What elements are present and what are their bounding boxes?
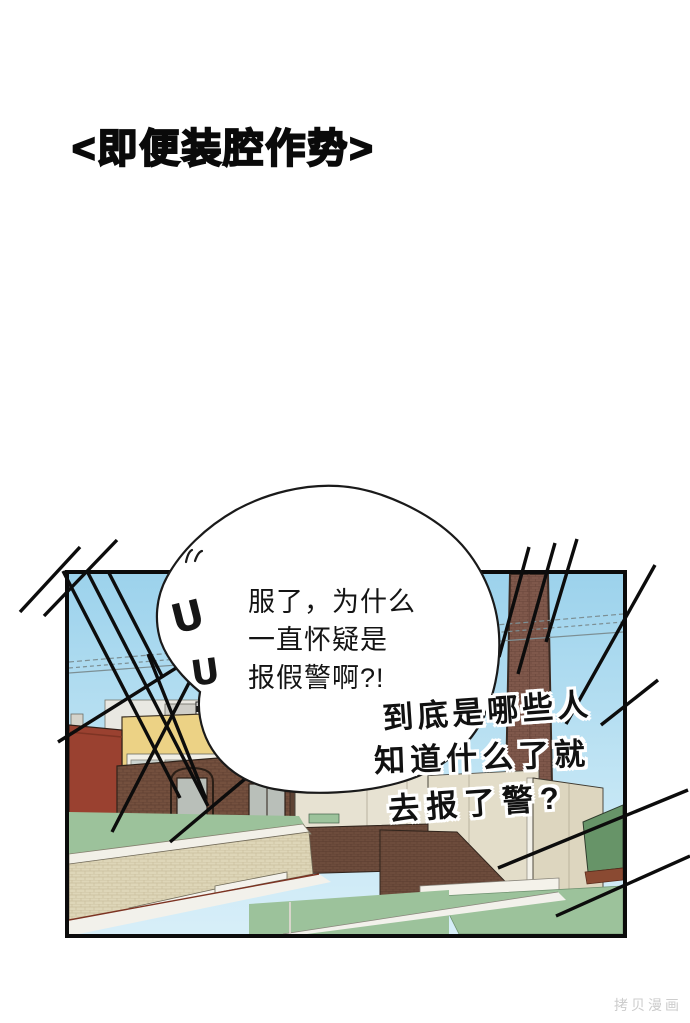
speech-bubble-text: 服了，为什么 一直怀疑是 报假警啊?! [248, 583, 416, 697]
bubble-line-1: 服了，为什么 [248, 583, 416, 621]
watermark: 拷贝漫画 [614, 995, 682, 1015]
comic-page: { "title": "<即便装腔作势>", "watermark": "拷贝漫… [0, 0, 690, 1023]
bubble-tick-mark [186, 550, 202, 562]
page-title: <即便装腔作势> [72, 116, 375, 174]
bubble-line-3: 报假警啊?! [248, 659, 416, 697]
bubble-line-2: 一直怀疑是 [248, 621, 416, 659]
